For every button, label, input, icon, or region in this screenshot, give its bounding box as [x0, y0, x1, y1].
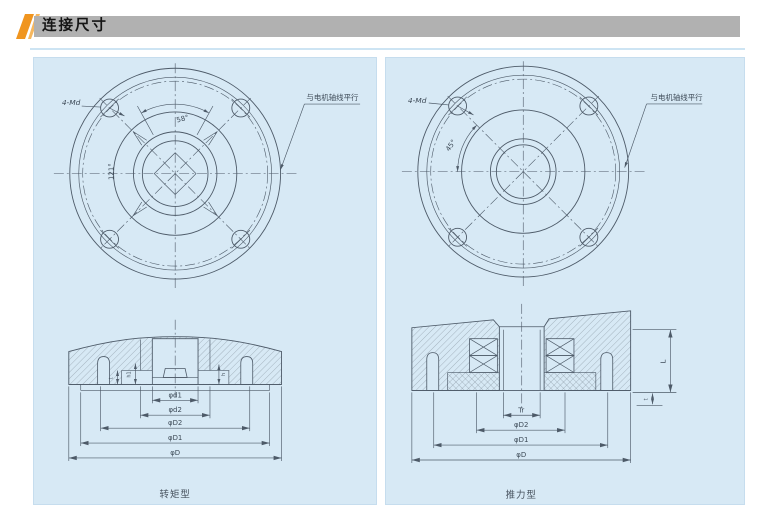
dim-D2: φD2 [168, 419, 182, 427]
small-dim-h1: h1 [126, 371, 132, 377]
right-drawing-panel: 45° 4-Md 与电机轴线平行 [385, 57, 745, 505]
right-drawing: 45° 4-Md 与电机轴线平行 [386, 58, 744, 504]
divider [30, 48, 745, 50]
left-cross-section: t h1 h [69, 320, 282, 398]
axis-note: 与电机轴线平行 [306, 92, 359, 102]
bolt-hole-section [241, 357, 253, 385]
bolt-hole-section [427, 353, 439, 391]
left-caption: 转矩型 [160, 489, 191, 501]
page-title: 连接尺寸 [34, 16, 740, 37]
dim-D1: φD1 [168, 434, 182, 442]
bolt-spec-label: 4-Md [408, 96, 427, 105]
angle-58-label: 58° [176, 114, 190, 125]
axis-note: 与电机轴线平行 [651, 92, 704, 102]
right-cross-section: L t [412, 304, 677, 409]
section-header-bar: 连接尺寸 [34, 16, 740, 37]
catalog-page: 连接尺寸 [0, 0, 761, 531]
dim-D: φD [516, 451, 526, 459]
small-dim-t: t [109, 377, 115, 379]
bolt-spec-label: 4-Md [62, 98, 81, 107]
angle-45-label: 45° [444, 138, 458, 153]
left-drawing-panel: 58° 121° 4-Md 与电机轴线平行 [33, 57, 377, 505]
dim-D: φD [170, 449, 180, 457]
right-flange-top-view: 45° 4-Md 与电机轴线平行 [402, 61, 703, 288]
small-dim-h: h [221, 373, 227, 376]
dim-L: L [659, 359, 667, 363]
left-dimension-lines: φd1 φd2 φD2 φD1 φD [69, 386, 282, 461]
dim-d1: φd1 [168, 391, 181, 399]
dim-D2: φD2 [514, 421, 528, 429]
dim-D1: φD1 [514, 436, 528, 444]
dim-Tr: Tr [517, 406, 524, 414]
dim-t: t [644, 398, 650, 400]
left-flange-top-view: 58° 121° 4-Md 与电机轴线平行 [54, 63, 360, 290]
right-dimension-lines: Tr φD2 φD1 φD [412, 392, 631, 463]
angle-121-label: 121° [108, 163, 116, 180]
right-caption: 推力型 [506, 489, 537, 501]
left-drawing: 58° 121° 4-Md 与电机轴线平行 [34, 58, 376, 504]
dim-d2: φd2 [168, 406, 181, 414]
bolt-hole-section [601, 353, 613, 391]
